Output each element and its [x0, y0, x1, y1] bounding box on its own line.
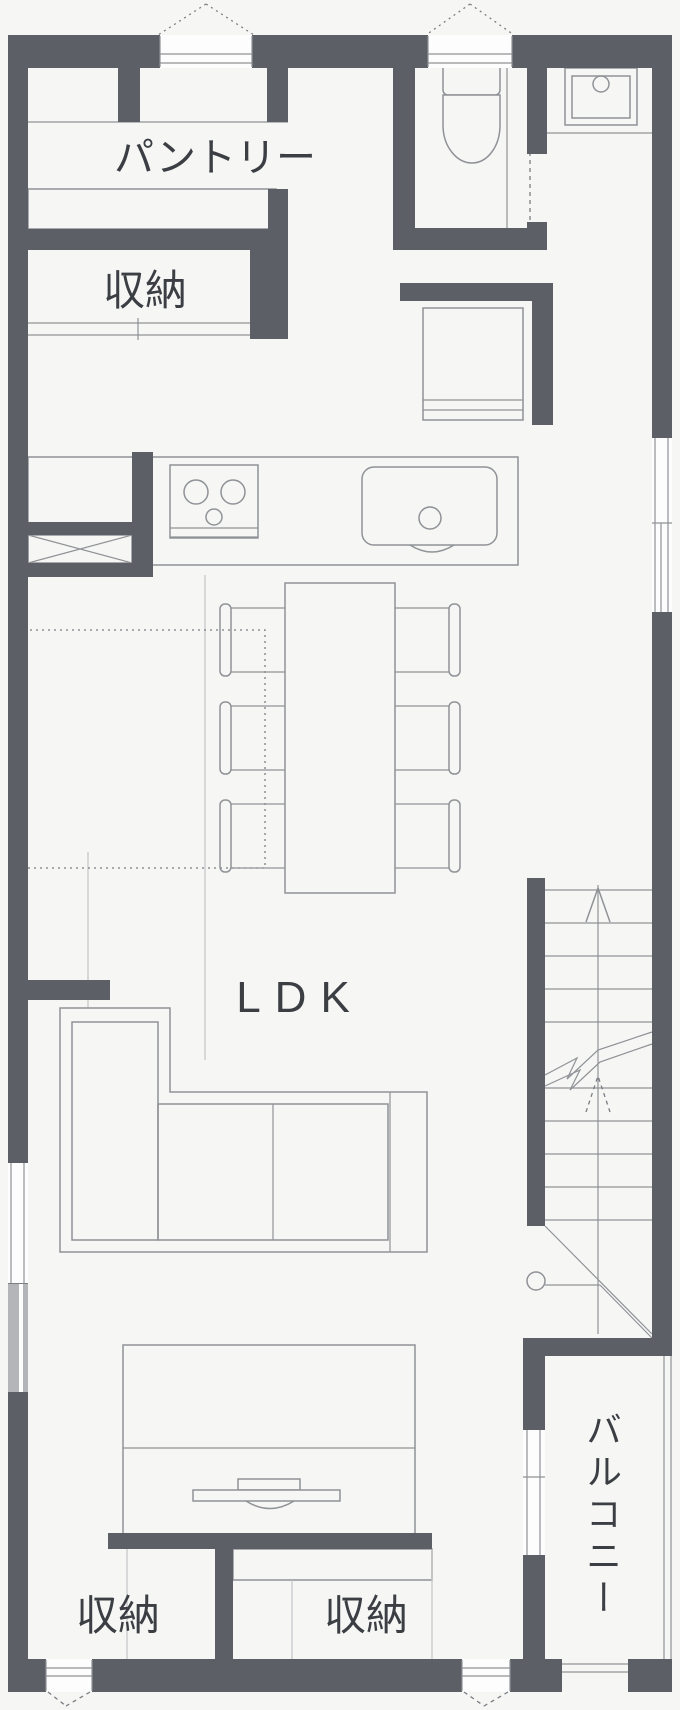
- wall-balcony-top: [545, 1338, 672, 1356]
- window-balcony: [523, 1430, 545, 1555]
- wall-pantry-stub-right: [267, 68, 288, 122]
- wall-closet-divider: [215, 1549, 233, 1659]
- wall-stair-left: [527, 878, 545, 1226]
- floor-plan-drawing: [0, 0, 680, 1710]
- stove-body: [170, 465, 258, 538]
- sink-faucet: [419, 507, 441, 529]
- tv-screen-bar: [193, 1490, 340, 1501]
- wall-mid-left-stub: [28, 980, 110, 1000]
- wall-left: [8, 35, 28, 1692]
- sink-basin: [362, 467, 497, 545]
- wall-kitchen-stub: [132, 452, 153, 577]
- pantry-label: パントリー: [114, 138, 316, 178]
- wall-tv: [108, 1533, 432, 1549]
- kitchen: [28, 457, 518, 565]
- window-lower-band: [8, 1284, 28, 1392]
- wall-storage-inner: [250, 250, 268, 318]
- wall-pantry-stub-left: [118, 68, 140, 122]
- pantry-shelf: [28, 189, 276, 229]
- toilet-icon: [443, 55, 500, 163]
- toilet-bowl: [443, 95, 500, 163]
- window-right-wall: [652, 438, 672, 612]
- wall-washroom-right: [532, 301, 553, 425]
- window-top-left: [160, 35, 252, 68]
- wall-kitchen-bar-bottom: [28, 563, 132, 577]
- wall-top: [8, 35, 672, 68]
- storage-bottom-right-label: 収納: [324, 1595, 408, 1637]
- wall-toilet-bottom: [393, 228, 547, 250]
- wall-balcony-left-lower: [523, 1555, 545, 1659]
- wall-washroom-top: [400, 283, 553, 301]
- dining-table-icon: [285, 583, 395, 893]
- wall-toilet-sink-divider-bottom: [527, 222, 547, 250]
- ldk-label: LDK: [236, 976, 364, 1020]
- washbasin-cabinet-body: [423, 308, 523, 420]
- window-glass: [523, 1430, 545, 1555]
- window-lower-slit: [19, 1284, 23, 1392]
- wall-storage-foot: [250, 318, 288, 339]
- window-left-wall: [8, 1163, 28, 1392]
- wall-toilet-sink-divider-top: [527, 68, 547, 154]
- storage-top-label: 収納: [103, 270, 187, 312]
- wall-pantry-storage-divider: [18, 229, 288, 250]
- wall-storage-right: [268, 189, 288, 339]
- wall-balcony-left-upper: [523, 1338, 545, 1430]
- wall-toilet-left: [393, 68, 415, 250]
- kitchen-sink-icon: [362, 467, 497, 552]
- wall-kitchen-bar-top: [28, 522, 132, 535]
- washbasin-cabinet-icon: [423, 308, 523, 420]
- utility-sink-icon: [565, 68, 637, 125]
- gas-stove-icon: [170, 465, 258, 538]
- balcony-label: バルコニー: [583, 1411, 619, 1621]
- window-top-right: [428, 35, 512, 68]
- storage-bottom-left-label: 収納: [76, 1595, 160, 1637]
- floor-plan: パントリー 収納 LDK バルコニー 収納 収納: [0, 0, 680, 1710]
- wall-right: [652, 35, 672, 1345]
- wall-balcony-bottom-right-block: [628, 1659, 672, 1692]
